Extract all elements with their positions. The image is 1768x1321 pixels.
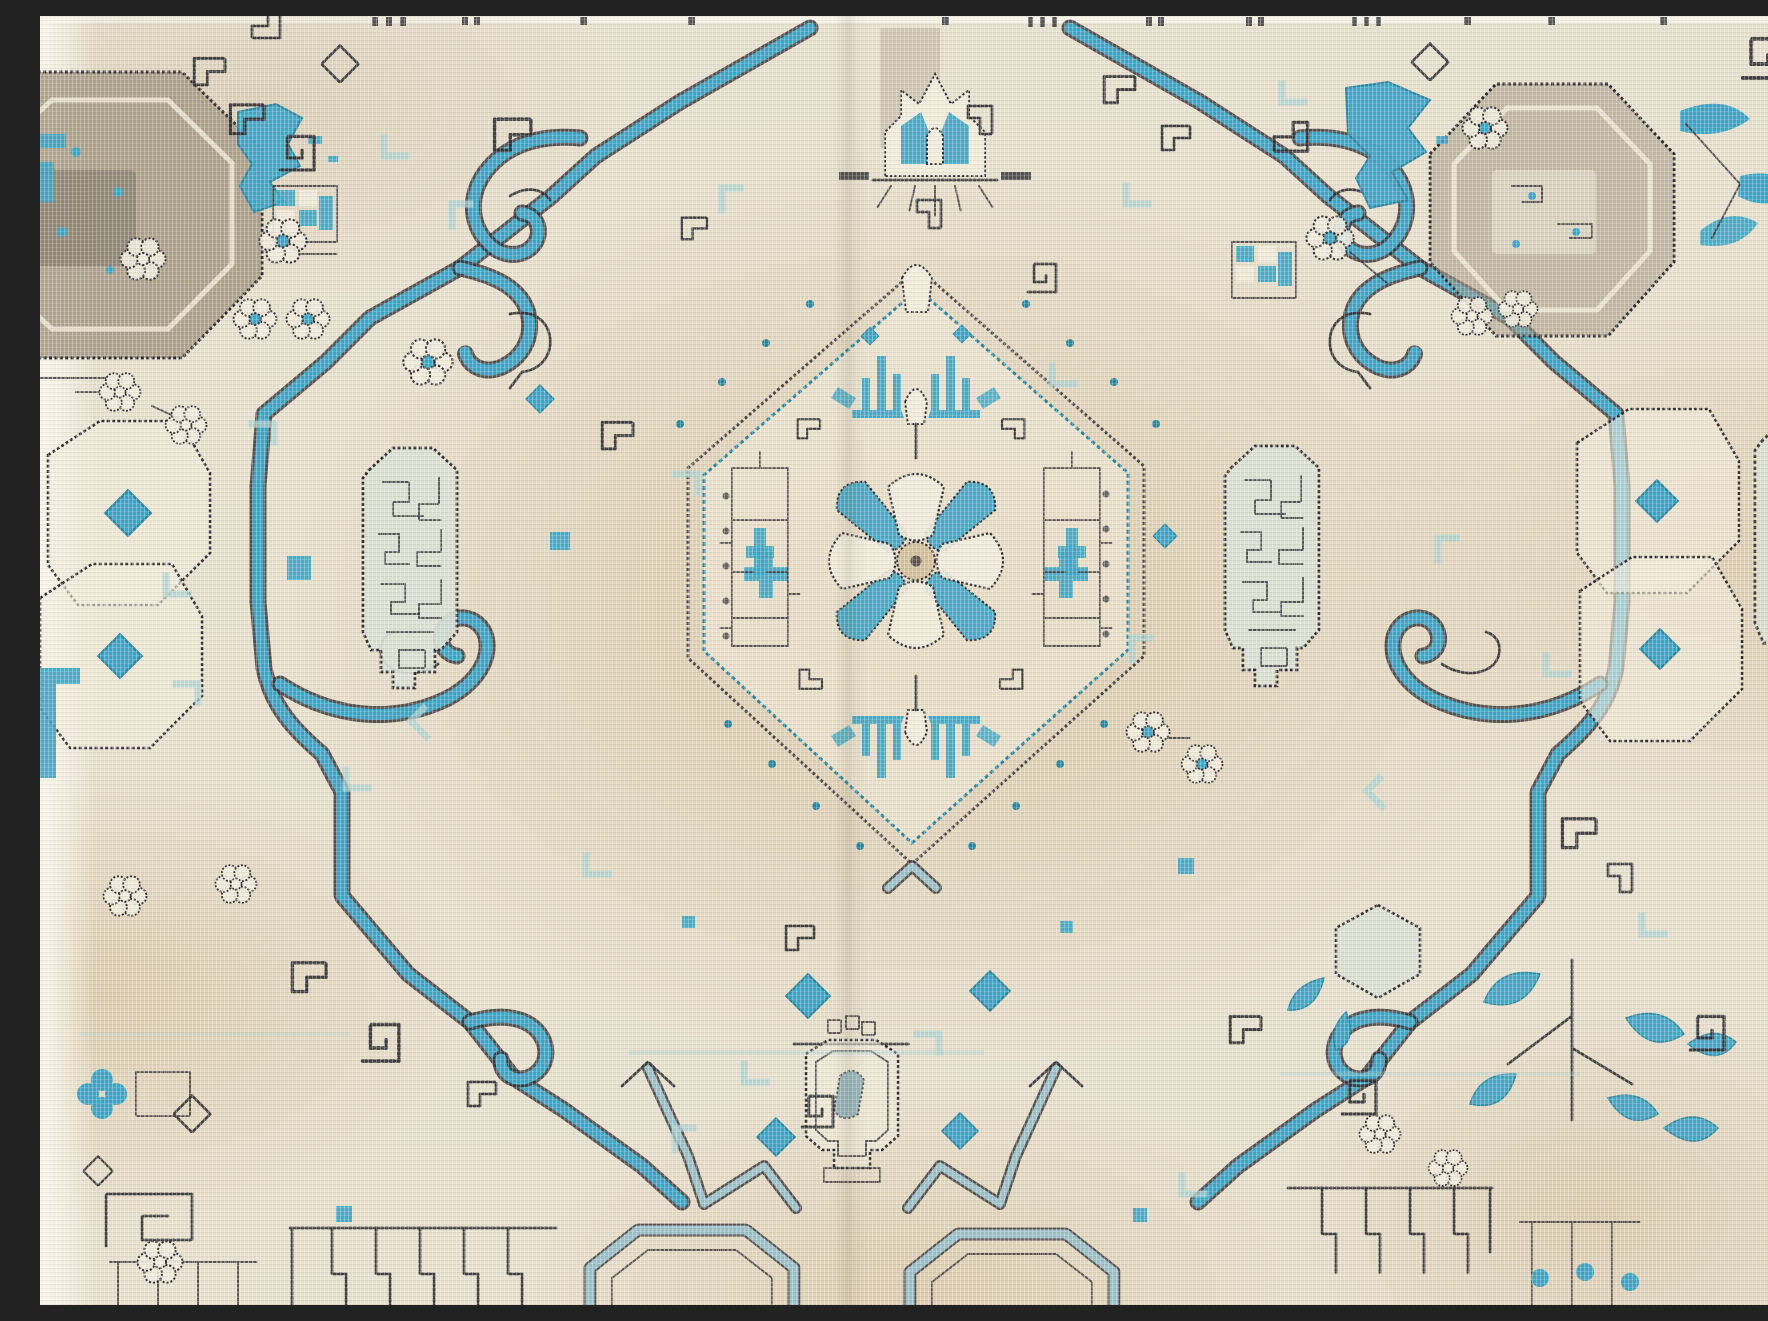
rug-pattern-drawing	[40, 16, 1768, 1305]
bottom-octagon-left	[590, 1230, 794, 1305]
teal-flower-bottom-left	[77, 1069, 190, 1119]
bottom-octagon-right	[910, 1234, 1114, 1305]
fret-medallion-far-right	[1755, 417, 1768, 686]
hexagon-top-bud	[902, 265, 932, 312]
fret-medallion-right	[1225, 446, 1319, 686]
teal-buds-row	[1531, 1263, 1639, 1291]
eight-petal-rosette	[829, 474, 1003, 648]
celadon-hexagon-bloom	[1336, 905, 1420, 998]
corner-octagon-top-left	[40, 72, 262, 358]
comb-fragment-bottom-right	[1288, 1188, 1640, 1305]
teal-leaves-top-right	[1680, 104, 1768, 246]
rug-photograph: Close-up photograph of a vintage hand-kn…	[40, 16, 1768, 1305]
steel-chevron-right	[908, 1062, 1082, 1208]
top-edge-border-dashes	[372, 17, 1667, 27]
hexagon-bottom-arrow	[888, 866, 936, 888]
crown-palmette-top	[839, 28, 1031, 216]
grid-cluster-top-right	[1232, 242, 1296, 298]
pendant-octagon	[794, 1016, 910, 1182]
